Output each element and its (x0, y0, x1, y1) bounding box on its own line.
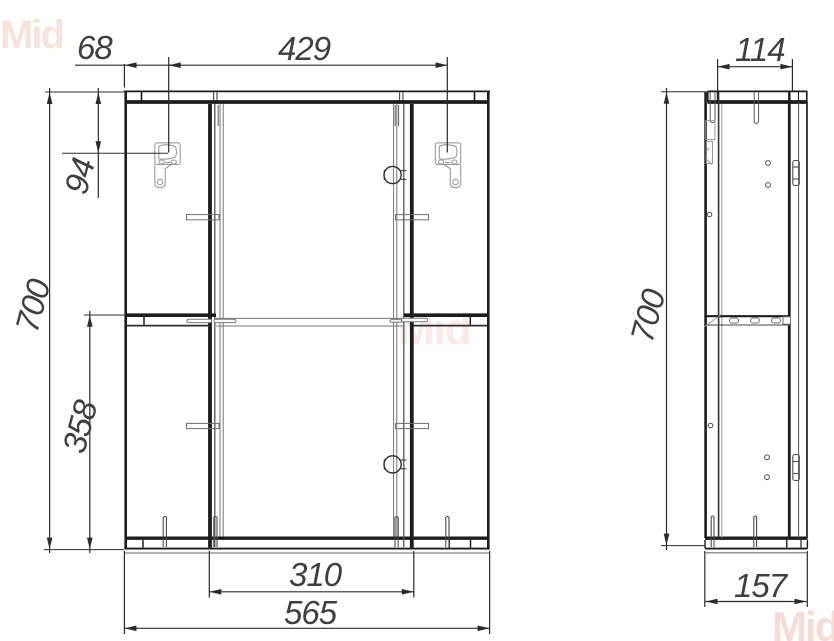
svg-text:Mid: Mid (772, 603, 834, 641)
svg-text:700: 700 (8, 274, 58, 335)
svg-text:358: 358 (55, 395, 105, 456)
svg-text:68: 68 (77, 29, 113, 66)
svg-text:114: 114 (735, 31, 785, 68)
svg-text:700: 700 (623, 284, 673, 345)
svg-text:Mid: Mid (0, 13, 63, 57)
svg-text:310: 310 (289, 556, 343, 593)
svg-text:429: 429 (278, 30, 331, 67)
svg-text:94: 94 (57, 154, 102, 198)
svg-text:Mid: Mid (398, 305, 471, 354)
svg-text:157: 157 (734, 567, 789, 604)
svg-text:565: 565 (284, 594, 338, 631)
